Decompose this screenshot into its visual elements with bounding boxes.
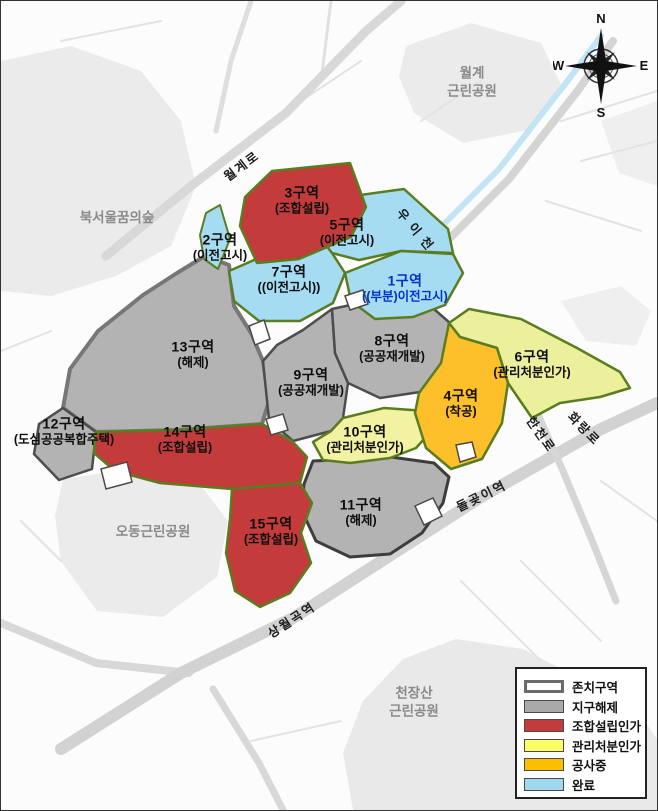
legend-swatch-approved xyxy=(524,739,564,752)
compass-n: N xyxy=(596,13,605,26)
zone-11-name: 11구역 xyxy=(340,496,383,513)
zone-7-status: ((이전고시)) xyxy=(258,280,321,295)
zone-7-name: 7구역 xyxy=(258,263,321,280)
park-label-bukseoul: 북서울꿈의숲 xyxy=(80,209,155,227)
zone-3-status: (조합설립) xyxy=(275,201,329,216)
legend-row-construction: 공사중 xyxy=(524,755,645,775)
zone-9-status: (공공재개발) xyxy=(278,383,344,398)
zone-5-name: 5구역 xyxy=(320,216,374,233)
legend-label-retained: 존치구역 xyxy=(572,677,618,696)
zone-15-name: 15구역 xyxy=(244,515,298,532)
zone-6-status: (관리처분인가) xyxy=(493,365,570,380)
legend-label-completed: 완료 xyxy=(572,775,595,794)
zone-label-3: 3구역 (조합설립) xyxy=(275,184,329,215)
zone-3-name: 3구역 xyxy=(275,184,329,201)
legend-swatch-dismissed xyxy=(524,700,564,713)
zone-12-name: 12구역 xyxy=(14,415,114,432)
zone-10-name: 10구역 xyxy=(326,423,403,440)
legend-row-completed: 완료 xyxy=(524,775,645,795)
compass-e: E xyxy=(640,58,649,73)
zone-label-12: 12구역 (도심공공복합주택) xyxy=(14,415,114,446)
zone-10-status: (관리처분인가) xyxy=(326,440,403,455)
zone-8-status: (공공재개발) xyxy=(359,349,425,364)
zone-label-8: 8구역 (공공재개발) xyxy=(359,332,425,363)
zone-2-status: (이전고시) xyxy=(193,248,247,263)
legend-swatch-retained xyxy=(524,680,564,693)
legend-row-dismissed: 지구해제 xyxy=(524,697,645,717)
zone-1-status: ((부분)이전고시) xyxy=(362,289,448,304)
compass-w: W xyxy=(553,58,565,73)
legend-row-retained: 존치구역 xyxy=(524,677,645,697)
zone-label-11: 11구역 (해제) xyxy=(340,496,383,527)
zone-label-1: 1구역 ((부분)이전고시) xyxy=(362,272,448,303)
zone-15-status: (조합설립) xyxy=(244,532,298,547)
compass-s: S xyxy=(597,105,606,119)
zone-label-14: 14구역 (조합설립) xyxy=(158,423,212,454)
park-label-odong: 오동근린공원 xyxy=(116,523,191,541)
zone-14-status: (조합설립) xyxy=(158,440,212,455)
zone-label-2: 2구역 (이전고시) xyxy=(193,231,247,262)
zone-13-status: (해제) xyxy=(171,355,214,370)
zone-11-status: (해제) xyxy=(340,513,383,528)
redevelopment-district-map: 1구역 ((부분)이전고시) 2구역 (이전고시) 3구역 (조합설립) 4구역… xyxy=(0,0,658,811)
legend-swatch-completed xyxy=(524,778,564,791)
zone-6-name: 6구역 xyxy=(493,348,570,365)
zone-14-name: 14구역 xyxy=(158,423,212,440)
park-label-cheonjangsan: 천장산 근린공원 xyxy=(389,684,439,719)
zone-label-9: 9구역 (공공재개발) xyxy=(278,366,344,397)
zone-label-6: 6구역 (관리처분인가) xyxy=(493,348,570,379)
legend-box: 존치구역 지구해제 조합설립인가 관리처분인가 공사중 완료 xyxy=(515,667,647,799)
zone-label-5: 5구역 (이전고시) xyxy=(320,216,374,247)
zone-2-name: 2구역 xyxy=(193,231,247,248)
zone-5-status: (이전고시) xyxy=(320,233,374,248)
legend-swatch-construction xyxy=(524,758,564,771)
zone-label-13: 13구역 (해제) xyxy=(171,338,214,369)
zone-1-name: 1구역 xyxy=(362,272,448,289)
legend-label-union: 조합설립인가 xyxy=(572,716,641,735)
zone-13-name: 13구역 xyxy=(171,338,214,355)
legend-row-union: 조합설립인가 xyxy=(524,716,645,736)
legend-label-construction: 공사중 xyxy=(572,755,607,774)
legend-swatch-union xyxy=(524,719,564,732)
zone-label-4: 4구역 (착공) xyxy=(443,387,478,418)
legend-label-dismissed: 지구해제 xyxy=(572,697,618,716)
compass-main-star xyxy=(565,28,637,104)
park-label-wolgye: 월계 근린공원 xyxy=(447,64,497,99)
zone-8-name: 8구역 xyxy=(359,332,425,349)
zone-9-name: 9구역 xyxy=(278,366,344,383)
zone-label-7: 7구역 ((이전고시)) xyxy=(258,263,321,294)
zone-label-15: 15구역 (조합설립) xyxy=(244,515,298,546)
zone-4-name: 4구역 xyxy=(443,387,478,404)
compass-rose: N E S W xyxy=(553,13,649,119)
legend-row-approved: 관리처분인가 xyxy=(524,736,645,756)
zone-label-10: 10구역 (관리처분인가) xyxy=(326,423,403,454)
zone-4-status: (착공) xyxy=(443,404,478,419)
legend-label-approved: 관리처분인가 xyxy=(572,736,641,755)
zone-12-status: (도심공공복합주택) xyxy=(14,432,114,447)
